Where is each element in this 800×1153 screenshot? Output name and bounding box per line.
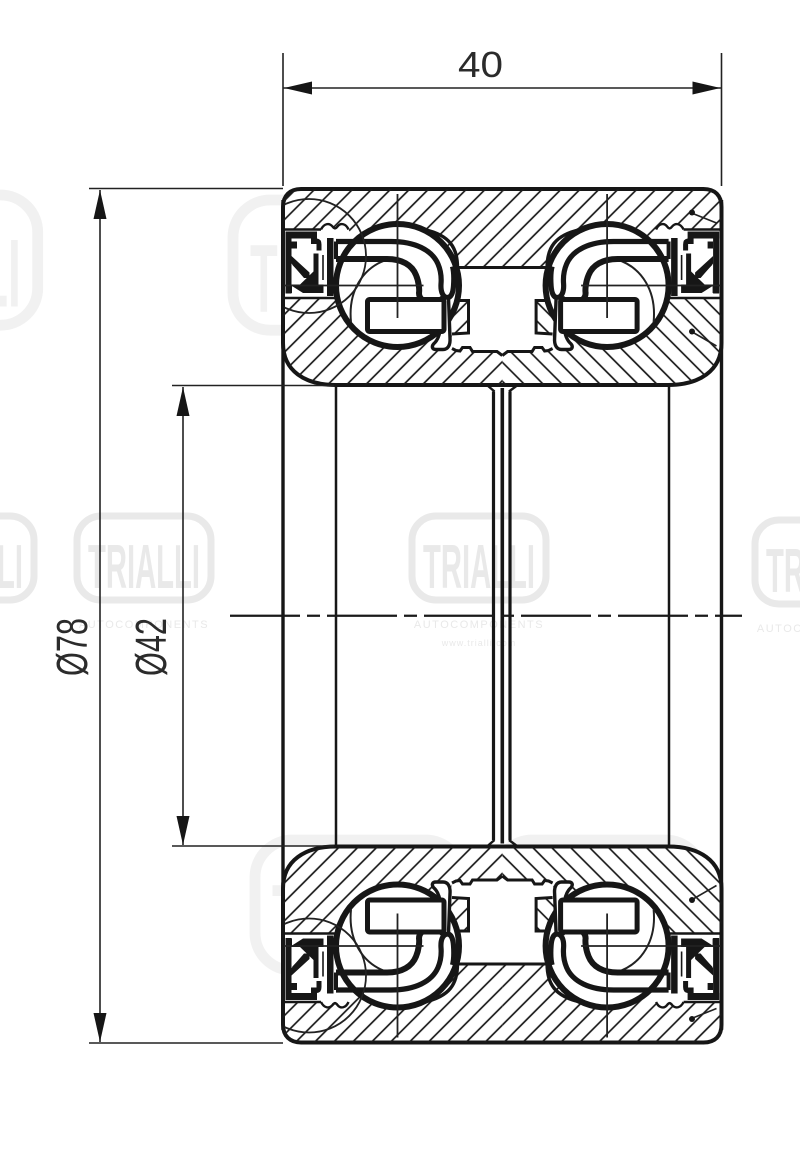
svg-text:AUTOCOMPONENTS: AUTOCOMPONENTS	[757, 623, 800, 635]
svg-text:Ø78: Ø78	[48, 618, 97, 676]
svg-text:TRIALLI: TRIALLI	[766, 537, 800, 606]
svg-text:40: 40	[458, 44, 503, 85]
svg-text:TRIALLI: TRIALLI	[0, 221, 21, 328]
svg-text:AUTOCOMPONENTS: AUTOCOMPONENTS	[414, 619, 544, 631]
svg-text:www.trialli.com: www.trialli.com	[441, 638, 517, 648]
svg-text:TRIALLI: TRIALLI	[0, 533, 23, 602]
svg-text:TRIALLI: TRIALLI	[423, 533, 535, 602]
svg-text:Ø42: Ø42	[127, 618, 176, 676]
